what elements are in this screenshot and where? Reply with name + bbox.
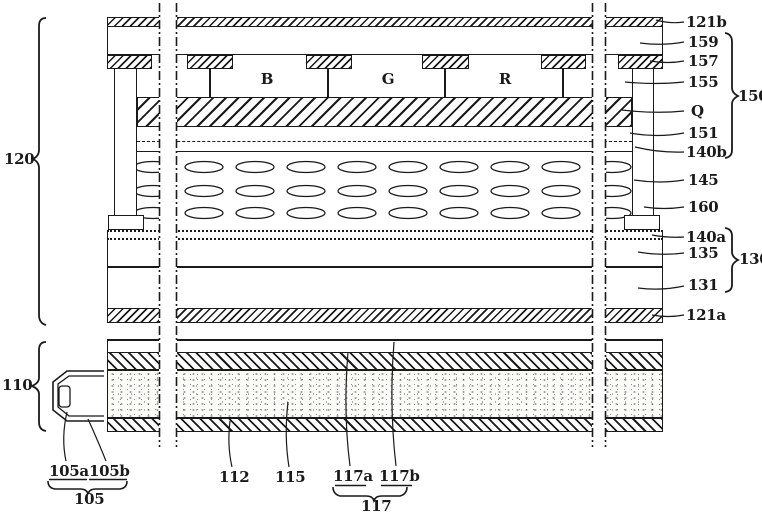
leader-121a [652, 315, 684, 317]
lamp-tube [59, 386, 70, 407]
label-105: 105 [74, 491, 104, 507]
leader-115 [286, 402, 289, 467]
label-131: 131 [688, 277, 718, 293]
label-155: 155 [688, 74, 718, 90]
leader-155 [625, 82, 684, 84]
label-150: 150 [738, 88, 762, 104]
leader-131 [638, 286, 684, 289]
leader-135 [638, 252, 684, 254]
leader-159 [640, 42, 684, 44]
color-filter-letter-g: G [374, 71, 402, 87]
color-filter-letter-r: R [491, 71, 519, 87]
label-112: 112 [219, 469, 249, 485]
label-160: 160 [688, 199, 718, 215]
leader-121b [656, 20, 684, 23]
color-filter-letter-b: B [253, 71, 281, 87]
leader-105b [88, 419, 106, 461]
brace-110 [32, 342, 46, 431]
label-115: 115 [275, 469, 305, 485]
brace-150 [725, 33, 738, 158]
leader-157 [650, 61, 684, 63]
label-159: 159 [688, 34, 718, 50]
leader-lines-bottom [64, 342, 396, 467]
brace-130 [725, 228, 738, 292]
leader-160 [644, 207, 684, 209]
leader-112 [229, 421, 232, 467]
label-140b: 140b [686, 144, 727, 160]
patent-figure-canvas: B G R [0, 0, 762, 514]
label-q: Q [691, 103, 704, 119]
leader-140b [635, 147, 684, 152]
label-140a: 140a [686, 229, 726, 245]
label-130: 130 [739, 251, 762, 267]
leader-117b [392, 342, 396, 466]
label-157: 157 [688, 53, 718, 69]
leader-lines-right [622, 20, 684, 317]
label-121a: 121a [686, 307, 726, 323]
label-105b: 105b [89, 463, 127, 479]
leader-151 [630, 133, 684, 136]
label-121b: 121b [686, 14, 727, 30]
leader-q [622, 110, 684, 112]
leader-117a [346, 352, 350, 466]
brace-120 [33, 18, 46, 325]
label-120: 120 [4, 151, 34, 167]
label-145: 145 [688, 172, 718, 188]
label-117a: 117a [333, 468, 369, 484]
leader-145 [634, 180, 684, 182]
label-105a: 105a [49, 463, 87, 479]
leader-140a [652, 235, 684, 237]
label-135: 135 [688, 245, 718, 261]
label-117b: 117b [379, 468, 415, 484]
label-117: 117 [361, 498, 391, 514]
label-151: 151 [688, 125, 718, 141]
label-110: 110 [2, 377, 32, 393]
